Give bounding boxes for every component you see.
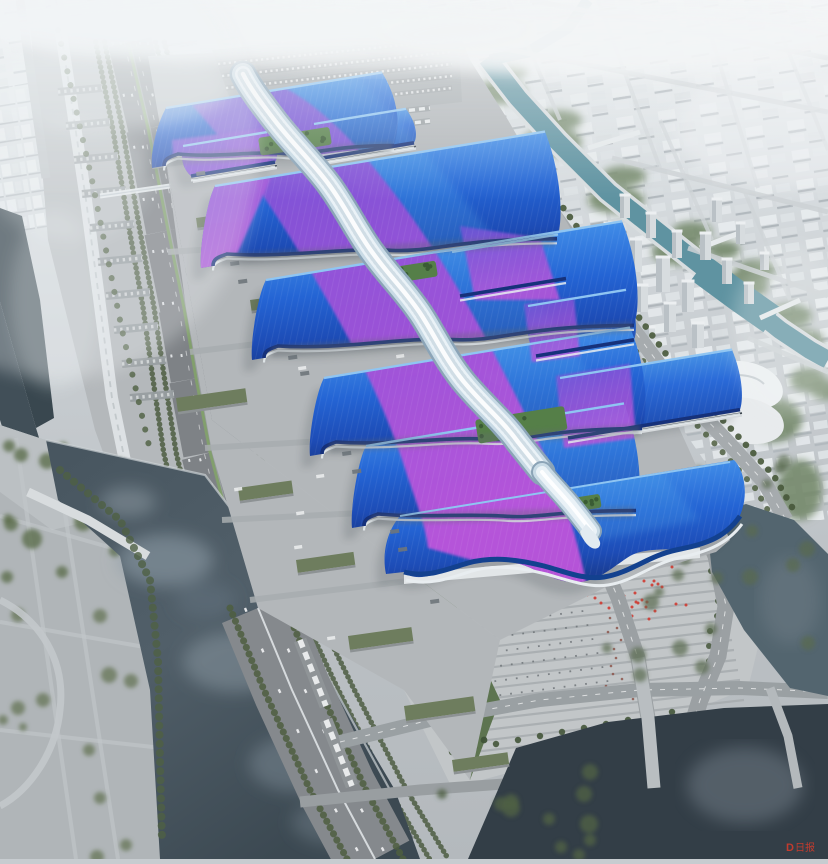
svg-text:日报: 日报 bbox=[795, 841, 815, 854]
svg-text:D: D bbox=[786, 842, 794, 854]
